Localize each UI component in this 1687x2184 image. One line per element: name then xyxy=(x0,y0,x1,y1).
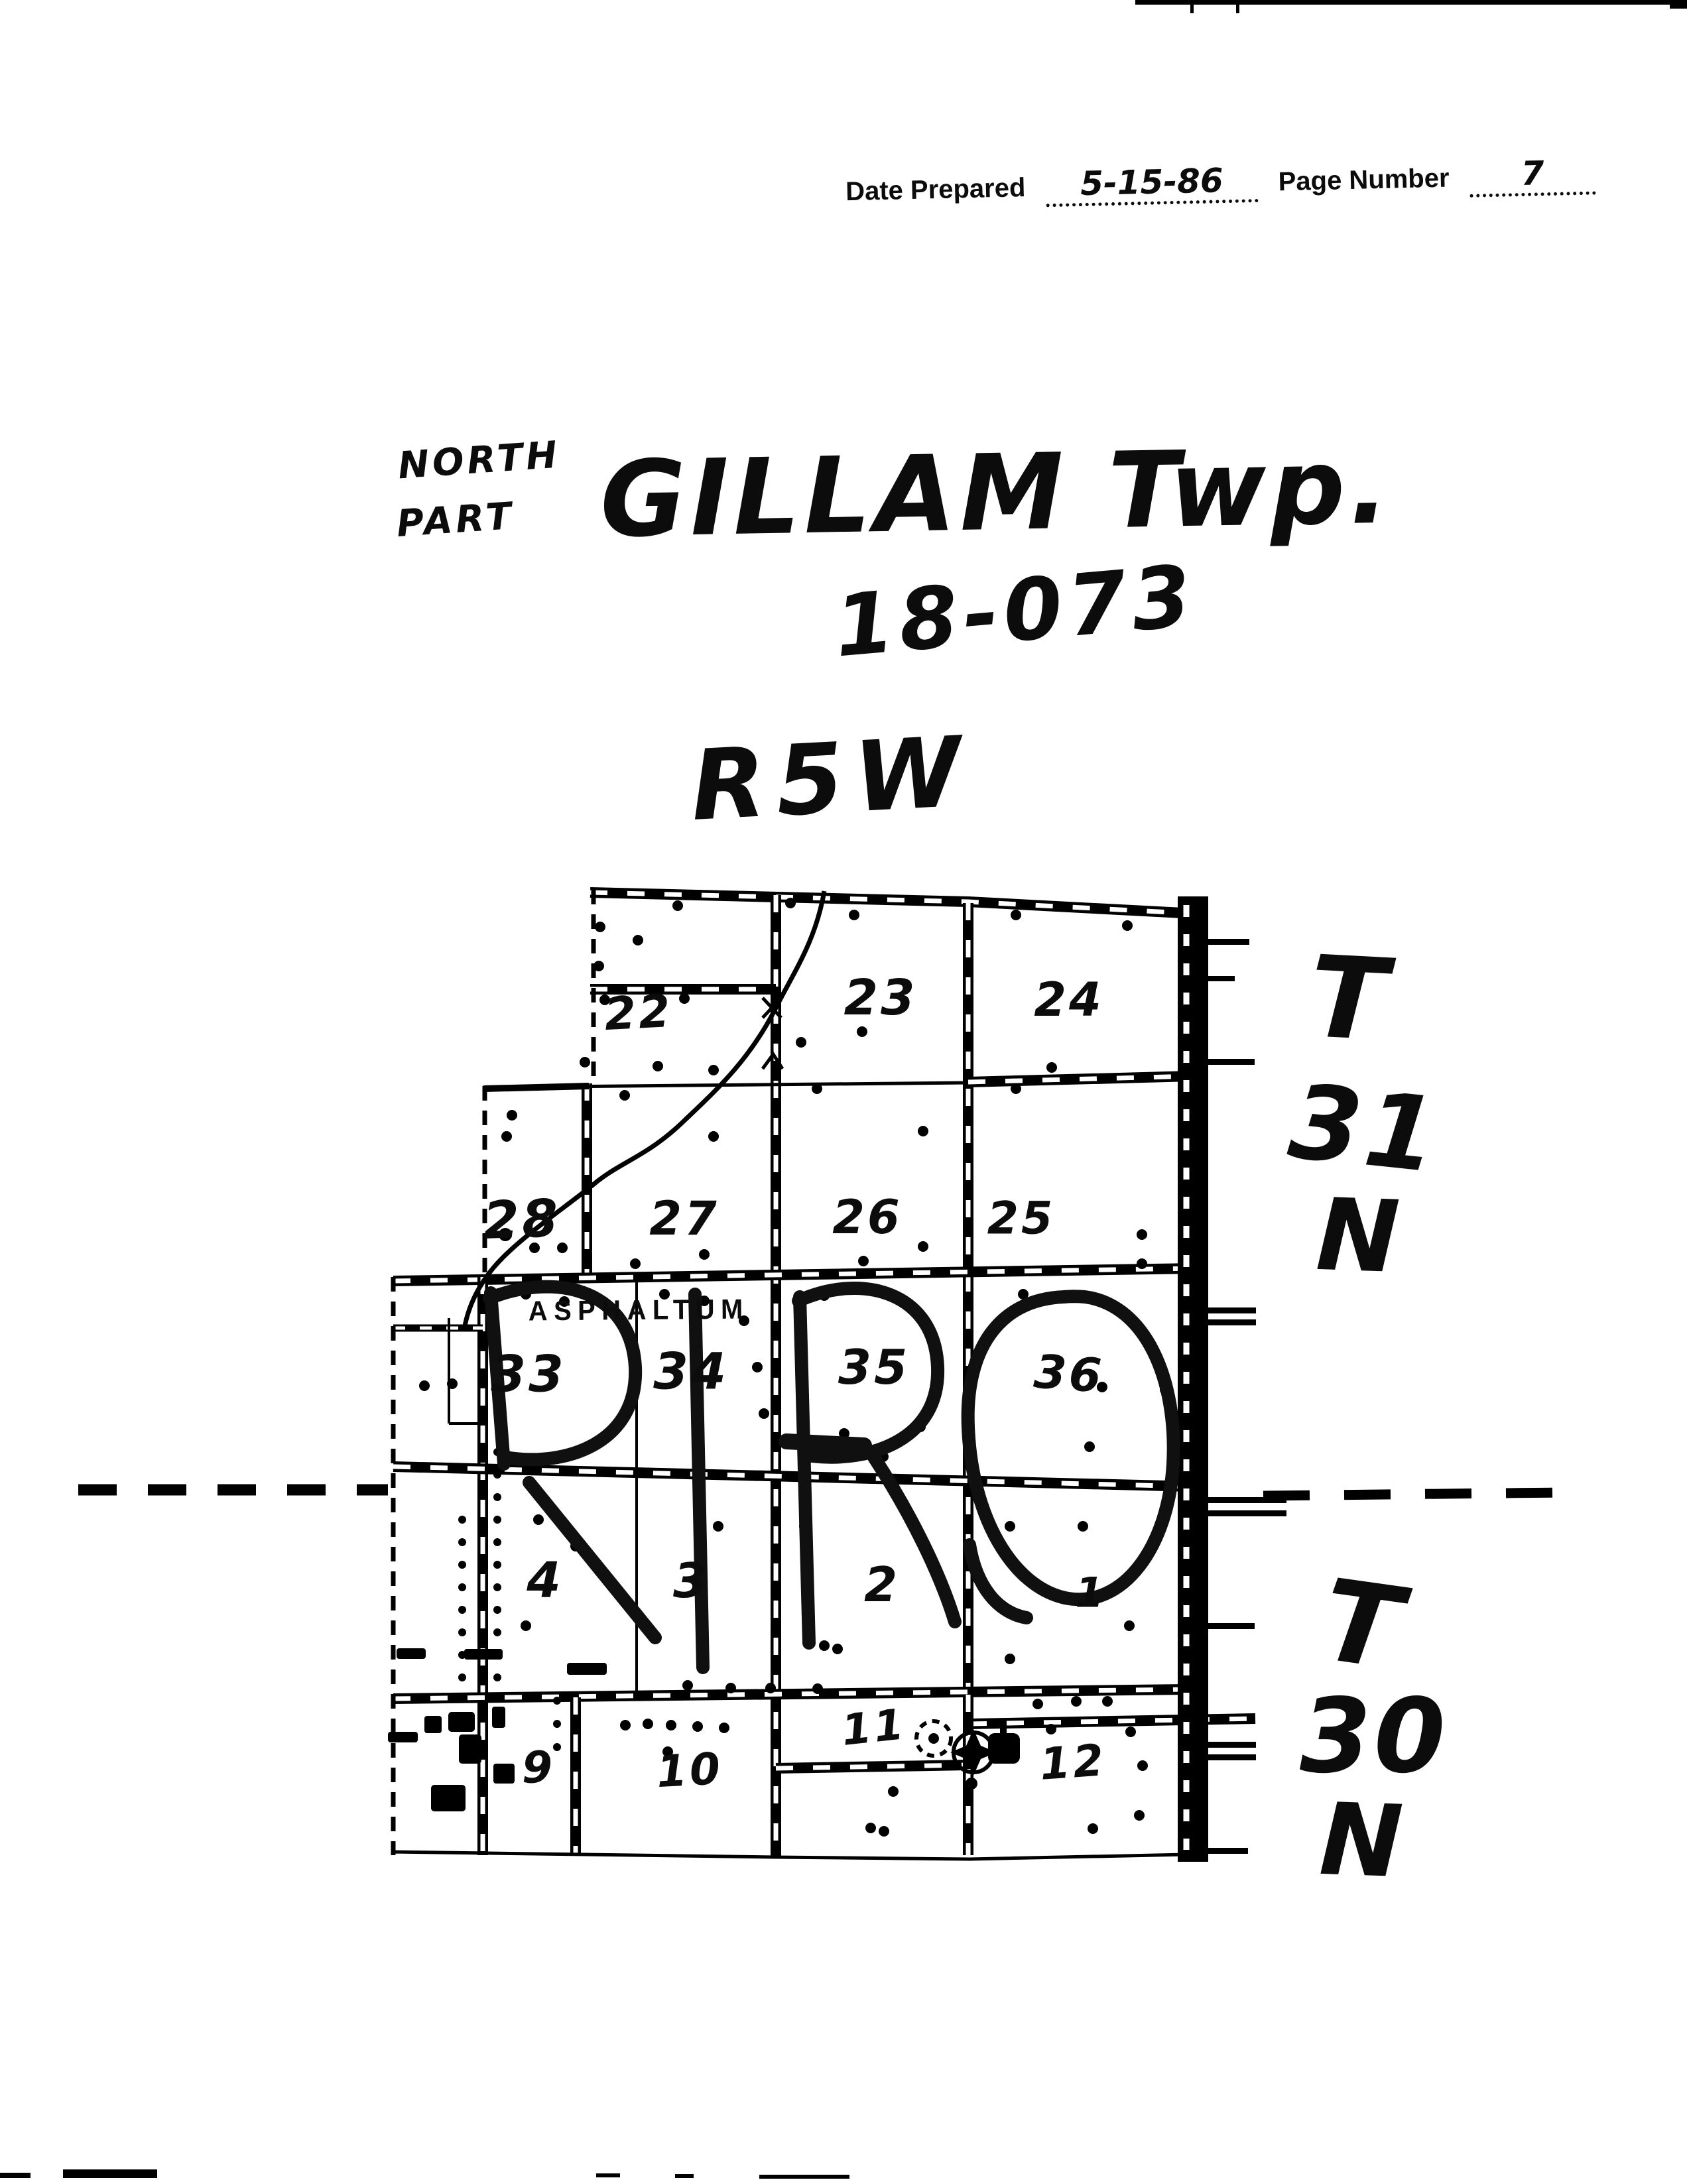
township-title: GILLAM Twp. xyxy=(599,426,1393,562)
section-28: 28 xyxy=(482,1189,562,1251)
section-2: 2 xyxy=(864,1557,900,1612)
page-number-value: 7 xyxy=(1469,153,1595,198)
section-1: 1 xyxy=(1075,1569,1106,1617)
section-34: 34 xyxy=(653,1342,729,1401)
section-24: 24 xyxy=(1034,973,1103,1027)
plat-book-page: Date Prepared 5-15-86 Page Number 7 NORT… xyxy=(0,0,1687,2184)
landmark-symbols xyxy=(916,1721,1020,1790)
section-9: 9 xyxy=(522,1742,555,1793)
date-prepared-value: 5-15-86 xyxy=(1045,160,1258,207)
section-23: 23 xyxy=(844,969,918,1026)
date-prepared-label: Date Prepared xyxy=(845,173,1026,206)
t31n-number: 31 xyxy=(1284,1062,1446,1197)
page-number-label: Page Number xyxy=(1278,164,1450,197)
section-4: 4 xyxy=(527,1552,564,1609)
t31n-letter-t: T xyxy=(1306,932,1390,1067)
section-27: 27 xyxy=(649,1191,719,1246)
section-11: 11 xyxy=(840,1700,908,1756)
area-label-asphaltum: ASPHALTUM xyxy=(529,1293,749,1327)
creek-line xyxy=(464,891,824,1329)
section-3: 3 xyxy=(673,1553,709,1608)
section-12: 12 xyxy=(1038,1734,1108,1790)
t30n-number: 30 xyxy=(1300,1676,1448,1796)
title-part-bottom: PART xyxy=(395,495,516,546)
township-boundary-dashed-line xyxy=(78,1490,1564,1496)
range-label: R5W xyxy=(688,715,974,843)
section-36: 36 xyxy=(1032,1344,1106,1403)
section-25: 25 xyxy=(987,1193,1056,1245)
section-22: 22 xyxy=(603,985,674,1041)
section-35: 35 xyxy=(838,1339,910,1395)
dashed-circle-symbol xyxy=(916,1721,951,1756)
section-26: 26 xyxy=(832,1190,902,1244)
section-10: 10 xyxy=(655,1743,724,1797)
t30n-letter-n: N xyxy=(1318,1782,1405,1900)
section-33: 33 xyxy=(491,1345,566,1404)
t31n-letter-n: N xyxy=(1314,1178,1402,1296)
